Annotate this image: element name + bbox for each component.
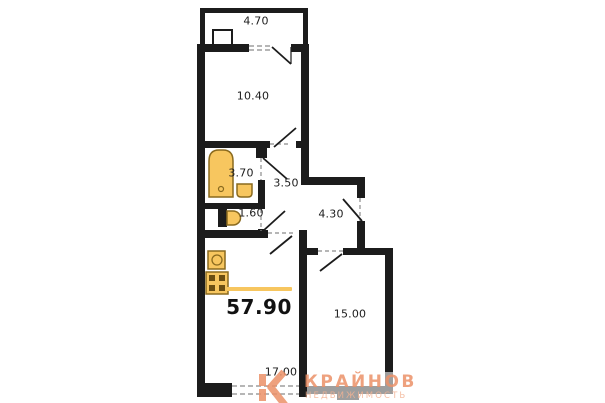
door-leaf <box>343 199 362 221</box>
watermark-subtitle: НЕДВИЖИМОСТЬ <box>305 391 407 401</box>
total-area-value: 57.90 <box>226 295 292 319</box>
room-area-label-hallway: 3.50 <box>273 177 298 190</box>
wall-segment <box>197 44 205 397</box>
doors <box>261 47 362 271</box>
door-leaf <box>270 236 292 254</box>
plan-graphics <box>0 0 605 403</box>
balcony-door <box>272 47 291 64</box>
room-door <box>318 251 343 271</box>
wall-segment <box>256 141 267 158</box>
door-leaf <box>263 211 285 231</box>
room-area-label-room: 15.00 <box>334 308 367 321</box>
wall-segment <box>301 177 365 185</box>
living-room-door <box>268 233 293 254</box>
room-area-label-wc: 1.60 <box>238 207 263 220</box>
stove-burner <box>209 285 215 291</box>
wall-segment <box>357 177 365 198</box>
duct-shaft <box>218 208 227 227</box>
total-area-block: 57.90 <box>226 287 292 319</box>
logo-bar <box>259 389 266 401</box>
accent-bar <box>226 287 292 291</box>
logo-bar <box>259 374 266 386</box>
wall-segment <box>197 383 232 397</box>
bedroom-door <box>270 128 296 147</box>
watermark-logo: КРАЙНОВ НЕДВИЖИМОСТЬ <box>256 358 426 403</box>
stove-burner <box>219 275 225 281</box>
stove-burner <box>219 285 225 291</box>
logo-leg <box>270 386 285 403</box>
entrance-door <box>343 198 362 221</box>
krainov-logo-icon <box>258 366 300 403</box>
wall-segment <box>197 230 268 238</box>
wall-segment <box>200 8 205 48</box>
room-area-label-bedroom: 10.40 <box>237 90 270 103</box>
room-area-label-bathroom: 3.70 <box>228 167 253 180</box>
wall-segment <box>296 141 301 148</box>
balcony-box <box>213 30 232 46</box>
floor-plan: 4.70 10.40 3.70 3.50 1.60 4.30 15.00 17.… <box>0 0 605 403</box>
door-leaf <box>272 47 291 64</box>
door-leaf <box>320 254 342 271</box>
wall-segment <box>301 44 309 184</box>
stove-burner <box>209 275 215 281</box>
room-area-label-balcony: 4.70 <box>243 15 268 28</box>
wall-segment <box>200 8 308 13</box>
wall-segment <box>385 248 393 372</box>
wall-segment <box>303 8 308 48</box>
wc-door <box>261 209 285 231</box>
room-area-label-corridor: 4.30 <box>318 208 343 221</box>
wall-segment <box>258 180 265 203</box>
washbasin <box>237 184 252 197</box>
watermark-title: КРАЙНОВ <box>304 372 417 392</box>
